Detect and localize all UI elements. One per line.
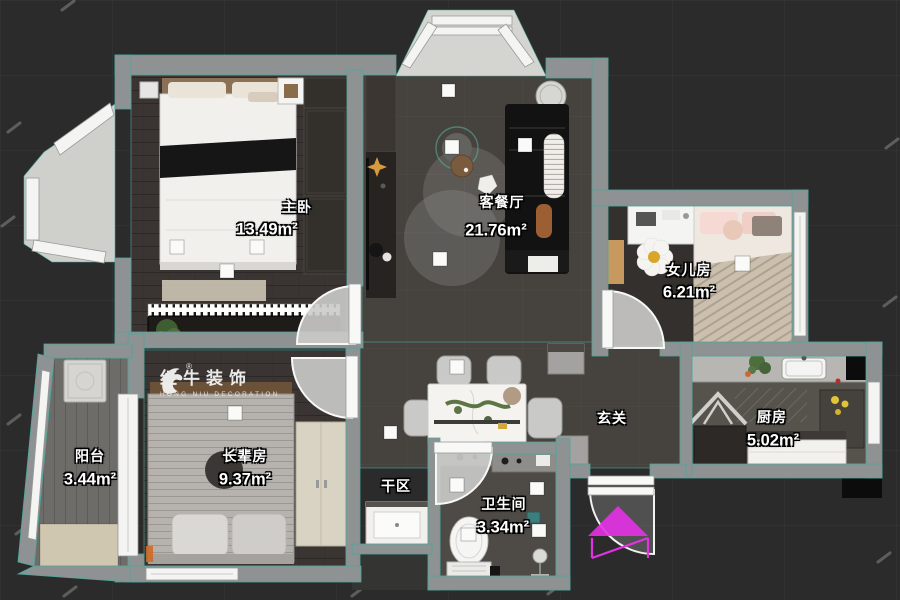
pillow (172, 514, 228, 556)
room-area-balcony: 3.44m² (64, 471, 116, 490)
kitchen-table (694, 426, 746, 464)
room-area-living: 21.76m² (465, 222, 526, 241)
room-label-master: 主卧 (282, 197, 312, 217)
floor-plan-graphics (0, 0, 900, 600)
bull-logo-icon (160, 364, 186, 396)
room-area-daughter: 6.21m² (663, 284, 715, 303)
tv-console (366, 152, 396, 298)
daughter-room-door-leaf (602, 290, 613, 348)
piano-rail (148, 301, 340, 304)
room-label-daughter: 女儿房 (667, 260, 712, 280)
top-bay-window-pane (432, 16, 512, 25)
coffee-table (451, 155, 473, 177)
room-area-kitchen: 5.02m² (747, 432, 799, 451)
tv-cabinet-upper (366, 72, 396, 152)
lumbar-pillow (536, 204, 552, 238)
room-label-living: 客餐厅 (480, 192, 525, 212)
kitchen-counter-top (692, 356, 868, 382)
washing-machine (64, 360, 106, 402)
master-wardrobe (304, 78, 348, 274)
decor-ball (383, 253, 392, 262)
serving-tray (434, 420, 520, 424)
bathroom-door-leaf (434, 442, 492, 453)
bedroom-rug (162, 280, 266, 304)
decor-bowl (369, 243, 383, 257)
entrance-door-leaf (588, 476, 654, 485)
tv-screen (366, 158, 369, 290)
service-shaft (352, 554, 428, 590)
pillow (232, 514, 286, 556)
room-label-hall: 玄关 (597, 408, 627, 428)
room-label-dry: 干区 (381, 476, 411, 496)
dry-area-furniture (366, 502, 428, 544)
gray-pillow (752, 216, 782, 236)
entrance-door-leaf (588, 487, 654, 495)
pedestal-sink (533, 549, 547, 563)
toilet-tank (447, 562, 491, 578)
table-decor (503, 387, 521, 405)
elder-room-door-leaf (346, 356, 358, 418)
nightstand (140, 82, 158, 98)
room-label-kitchen: 厨房 (757, 407, 787, 427)
room-label-balcony: 阳台 (75, 446, 105, 466)
floor-plan: 主卧 13.49m² 客餐厅 21.76m² 女儿房 6.21m² 厨房 5.0… (0, 0, 900, 600)
cushion (248, 92, 278, 102)
kitchen-window (868, 382, 880, 444)
master-bedroom-door-leaf (349, 284, 361, 344)
room-area-elder: 9.37m² (219, 471, 271, 490)
dining-chair (487, 356, 521, 386)
room-label-bath: 卫生间 (482, 494, 527, 514)
laptop (636, 212, 656, 226)
knit-throw (544, 134, 564, 198)
registered-mark: ® (186, 362, 192, 371)
balcony-mat (40, 524, 118, 566)
left-bay-window-pane (26, 178, 39, 240)
pillow (168, 82, 226, 98)
decor-candle (146, 546, 153, 562)
brand-watermark: ® 红牛装饰 HONG NIU DECORATION (160, 364, 280, 398)
room-label-elder: 长辈房 (223, 446, 268, 466)
sofa-blanket (528, 256, 558, 272)
dining-chair (528, 398, 562, 438)
room-area-bath: 3.34m² (477, 519, 529, 538)
room-area-master: 13.49m² (236, 221, 297, 240)
